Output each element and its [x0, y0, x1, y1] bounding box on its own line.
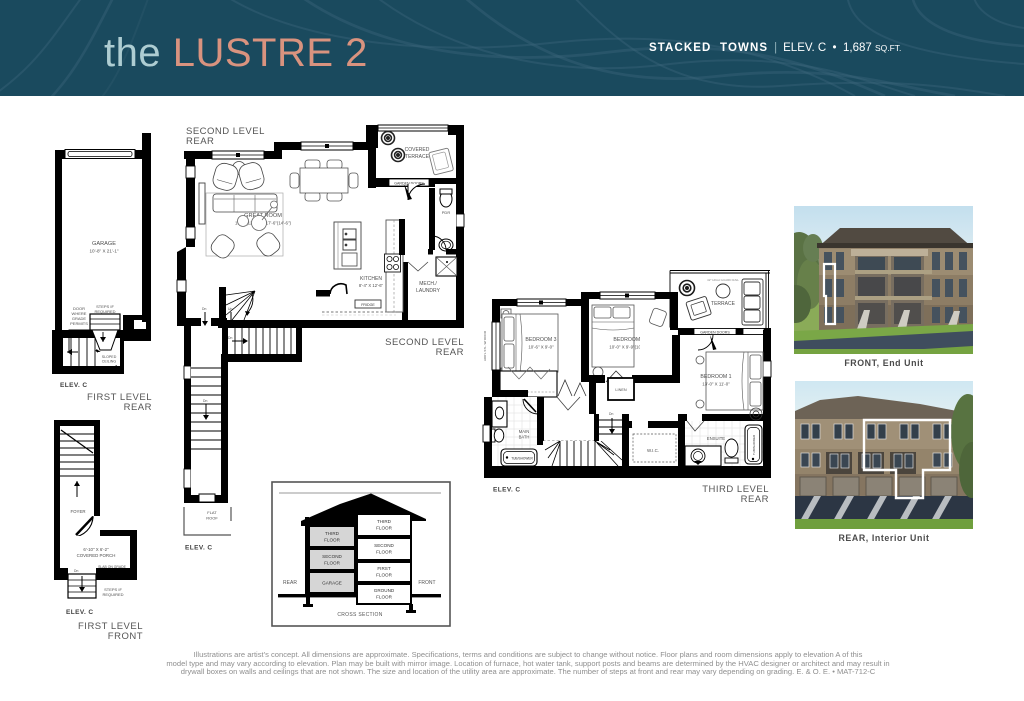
- svg-text:BATH: BATH: [519, 435, 530, 440]
- svg-text:TERRACE: TERRACE: [711, 301, 736, 307]
- svg-text:Dn: Dn: [228, 336, 232, 340]
- svg-text:ELEV. C: ELEV. C: [66, 609, 94, 616]
- svg-text:FLOOR: FLOOR: [324, 561, 341, 566]
- svg-text:FLOOR: FLOOR: [376, 573, 393, 578]
- svg-text:GARAGE: GARAGE: [92, 241, 116, 247]
- svg-text:PDR: PDR: [442, 210, 451, 215]
- svg-text:FRIDGE: FRIDGE: [361, 303, 375, 307]
- svg-text:6'-10" X 6'-2": 6'-10" X 6'-2": [83, 547, 109, 552]
- svg-text:FRONT, End Unit: FRONT, End Unit: [844, 358, 923, 368]
- svg-text:THIRD: THIRD: [325, 531, 340, 536]
- svg-text:FLOOR: FLOOR: [324, 538, 341, 543]
- svg-text:PERMITS: PERMITS: [70, 321, 88, 326]
- svg-text:COVERED PORCH: COVERED PORCH: [77, 553, 116, 558]
- svg-text:ELEV. C: ELEV. C: [185, 545, 213, 552]
- svg-text:FLOOR: FLOOR: [376, 526, 393, 531]
- svg-text:FOYER: FOYER: [70, 509, 85, 514]
- svg-text:COVERED: COVERED: [405, 147, 430, 153]
- svg-text:ELEV. C: ELEV. C: [493, 487, 521, 494]
- svg-text:Dn: Dn: [203, 399, 207, 403]
- svg-text:ENSUITE: ENSUITE: [707, 436, 725, 441]
- svg-text:REAR: REAR: [124, 402, 152, 413]
- svg-text:LAUNDRY: LAUNDRY: [416, 288, 440, 294]
- svg-text:LINEN: LINEN: [615, 388, 626, 392]
- svg-text:TUB/SHOWER: TUB/SHOWER: [511, 457, 533, 461]
- svg-text:CROSS SECTION: CROSS SECTION: [337, 612, 382, 618]
- svg-text:BEDROOM 1: BEDROOM 1: [700, 374, 731, 380]
- svg-text:FLAT: FLAT: [207, 510, 217, 515]
- svg-text:FLOOR: FLOOR: [376, 595, 393, 600]
- svg-text:REQUIRED: REQUIRED: [102, 592, 123, 597]
- svg-text:REAR: REAR: [186, 136, 214, 147]
- svg-text:REAR: REAR: [436, 347, 464, 358]
- svg-text:ADD'L STL. W/ DOOR: ADD'L STL. W/ DOOR: [483, 330, 487, 361]
- svg-text:FLOOR: FLOOR: [376, 550, 393, 555]
- svg-text:GROUND: GROUND: [374, 588, 395, 593]
- svg-text:42" HIGH GUARD RAIL: 42" HIGH GUARD RAIL: [707, 278, 739, 282]
- svg-text:8'-4" X 12'-6": 8'-4" X 12'-6": [359, 283, 384, 288]
- svg-text:GARAGE: GARAGE: [322, 581, 342, 586]
- svg-text:TUB/SHOWER: TUB/SHOWER: [752, 434, 756, 455]
- svg-text:13'-0" X 11'-0": 13'-0" X 11'-0": [702, 382, 730, 387]
- svg-text:Dn: Dn: [609, 412, 613, 416]
- svg-text:ROOF: ROOF: [206, 516, 218, 521]
- svg-text:W.I.C.: W.I.C.: [647, 448, 659, 453]
- svg-text:Dn: Dn: [74, 569, 78, 573]
- svg-text:CEILING: CEILING: [102, 360, 117, 364]
- svg-text:FIRST: FIRST: [377, 566, 390, 571]
- svg-text:GARDEN DOORS: GARDEN DOORS: [700, 331, 730, 335]
- svg-text:REQUIRED: REQUIRED: [94, 309, 115, 314]
- svg-text:ELEV. C: ELEV. C: [60, 382, 88, 389]
- svg-text:SECOND: SECOND: [374, 543, 394, 548]
- svg-text:SLOPED: SLOPED: [102, 355, 117, 359]
- svg-text:KITCHEN: KITCHEN: [360, 276, 382, 282]
- svg-text:10'-8" X 21'-1": 10'-8" X 21'-1": [89, 249, 118, 254]
- svg-text:TERRACE: TERRACE: [405, 154, 430, 160]
- svg-text:FRONT: FRONT: [418, 580, 435, 586]
- svg-text:SECOND: SECOND: [322, 554, 342, 559]
- svg-text:FRONT: FRONT: [108, 631, 143, 642]
- svg-text:REAR: REAR: [283, 580, 297, 586]
- svg-text:MECH./: MECH./: [419, 281, 437, 287]
- svg-text:REAR, Interior Unit: REAR, Interior Unit: [838, 533, 929, 543]
- svg-text:10'-6" X 9'-0": 10'-6" X 9'-0": [528, 345, 554, 350]
- svg-text:REAR: REAR: [741, 494, 769, 505]
- svg-text:BEDROOM 3: BEDROOM 3: [525, 337, 556, 343]
- svg-text:BEDROOM 2: BEDROOM 2: [613, 337, 644, 343]
- svg-text:THIRD: THIRD: [377, 519, 392, 524]
- svg-text:MAIN: MAIN: [519, 429, 529, 434]
- svg-text:Dn: Dn: [202, 307, 206, 311]
